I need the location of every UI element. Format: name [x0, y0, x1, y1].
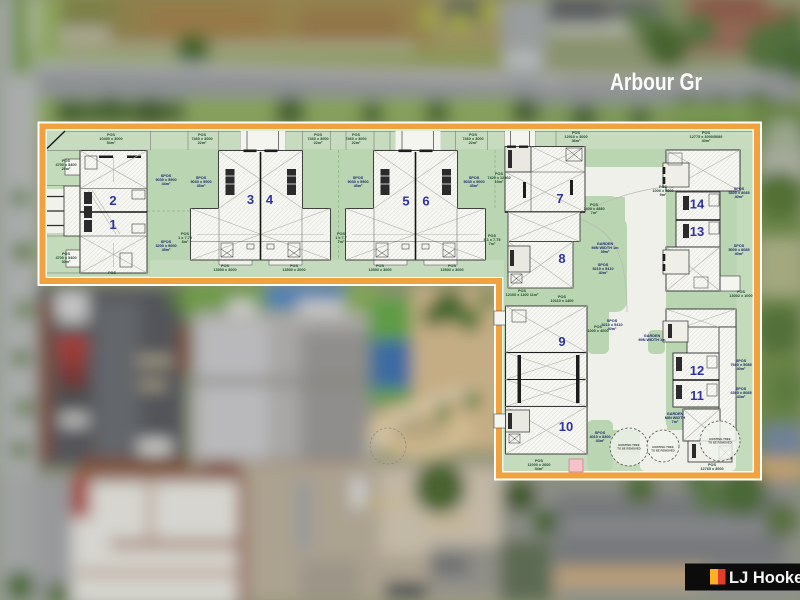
svg-text:22m²: 22m²	[198, 141, 208, 145]
svg-text:43m²: 43m²	[737, 395, 747, 399]
svg-text:45m²: 45m²	[470, 184, 480, 188]
svg-text:22m²: 22m²	[314, 141, 324, 145]
svg-text:40m²: 40m²	[599, 271, 609, 275]
svg-text:2: 2	[109, 193, 116, 208]
svg-text:9m²: 9m²	[660, 193, 667, 197]
svg-text:22m²: 22m²	[469, 141, 479, 145]
svg-text:40m²: 40m²	[702, 139, 712, 143]
svg-text:TO BE REMOVED: TO BE REMOVED	[651, 449, 674, 453]
svg-text:43m²: 43m²	[596, 439, 606, 443]
svg-text:40m²: 40m²	[735, 195, 745, 199]
svg-text:8m²: 8m²	[182, 240, 189, 244]
svg-text:MIN WIDTH 1m: MIN WIDTH 1m	[639, 338, 667, 342]
svg-text:19m²: 19m²	[495, 180, 505, 184]
svg-text:44m²: 44m²	[162, 182, 172, 186]
svg-text:POS: POS	[108, 271, 116, 275]
svg-text:7m²: 7m²	[672, 420, 679, 424]
svg-text:13500 x 3000: 13500 x 3000	[440, 268, 463, 272]
svg-text:9: 9	[558, 334, 565, 349]
svg-text:7m²: 7m²	[338, 240, 345, 244]
svg-text:3: 3	[247, 192, 254, 207]
svg-text:TO BE REMOVED: TO BE REMOVED	[617, 447, 640, 451]
svg-text:36m²: 36m²	[572, 139, 582, 143]
svg-text:5: 5	[402, 194, 409, 209]
svg-text:40m²: 40m²	[737, 367, 747, 371]
svg-text:45m²: 45m²	[354, 184, 364, 188]
svg-text:6: 6	[422, 194, 429, 209]
svg-text:8: 8	[558, 251, 565, 266]
svg-text:49m²: 49m²	[162, 248, 172, 252]
svg-text:13500 x 3000: 13500 x 3000	[213, 268, 236, 272]
svg-text:12100 x 1100 11m²: 12100 x 1100 11m²	[506, 293, 539, 297]
svg-text:1000 x 4000: 1000 x 4000	[587, 329, 608, 333]
svg-text:25m²: 25m²	[62, 167, 72, 171]
svg-text:12: 12	[690, 363, 704, 378]
svg-text:7m²: 7m²	[489, 242, 496, 246]
svg-text:45m²: 45m²	[197, 184, 207, 188]
svg-text:34m²: 34m²	[535, 467, 545, 471]
svg-text:10: 10	[559, 419, 573, 434]
svg-text:39m²: 39m²	[601, 250, 611, 254]
svg-text:1: 1	[109, 217, 116, 232]
svg-text:13002 x 1000: 13002 x 1000	[729, 294, 752, 298]
svg-text:12765 x 3000: 12765 x 3000	[700, 467, 723, 471]
svg-text:13: 13	[690, 224, 704, 239]
svg-text:7m²: 7m²	[591, 211, 598, 215]
svg-text:Arbour Gr: Arbour Gr	[610, 69, 702, 96]
svg-text:13500 x 3000: 13500 x 3000	[368, 268, 391, 272]
svg-text:40m²: 40m²	[735, 252, 745, 256]
svg-text:LJ Hooker: LJ Hooker	[729, 569, 800, 587]
svg-text:40m²: 40m²	[608, 327, 618, 331]
svg-text:54m²: 54m²	[107, 141, 117, 145]
svg-text:10110 x 1400: 10110 x 1400	[550, 299, 573, 303]
svg-text:TO BE REMOVED: TO BE REMOVED	[708, 441, 731, 445]
svg-text:22m²: 22m²	[352, 141, 362, 145]
svg-text:14: 14	[690, 197, 705, 212]
svg-text:11: 11	[690, 388, 704, 403]
svg-text:13500 x 3000: 13500 x 3000	[282, 268, 305, 272]
svg-text:30m²: 30m²	[62, 260, 72, 264]
svg-text:7: 7	[556, 191, 563, 206]
svg-text:4: 4	[266, 192, 274, 207]
